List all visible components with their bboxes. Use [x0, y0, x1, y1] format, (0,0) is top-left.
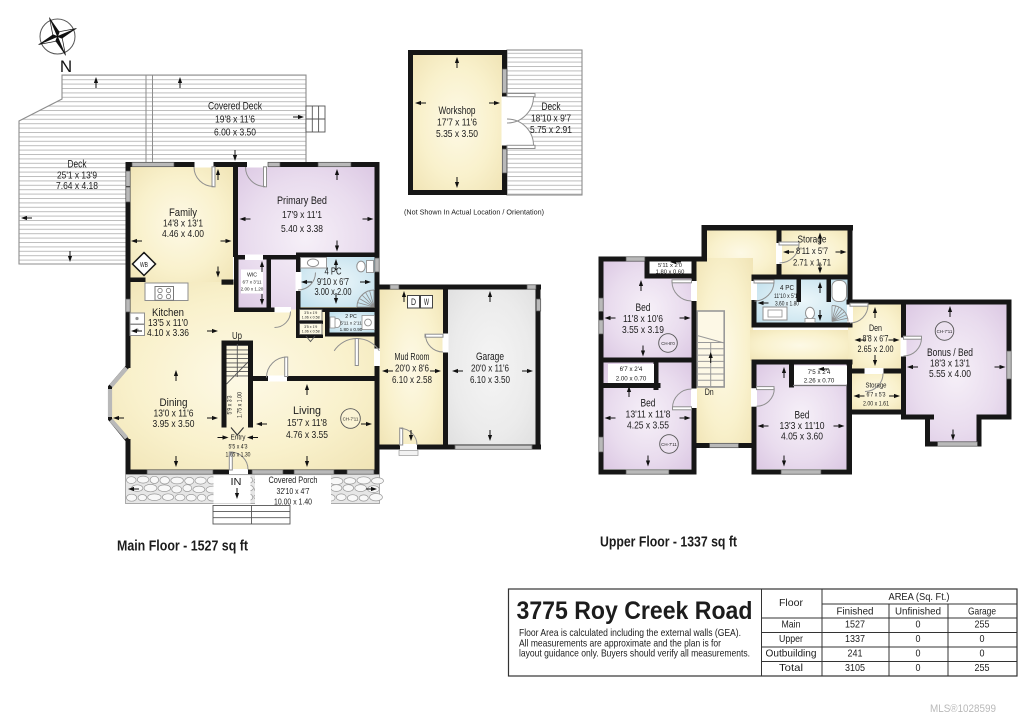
svg-text:19'8 x 11'6: 19'8 x 11'6 — [215, 114, 255, 126]
svg-text:Outbuilding: Outbuilding — [766, 648, 817, 660]
svg-text:Main: Main — [782, 619, 801, 631]
svg-text:5.75 x 2.91: 5.75 x 2.91 — [530, 124, 572, 136]
svg-text:18'10 x 9'7: 18'10 x 9'7 — [531, 113, 571, 125]
svg-text:Workshop: Workshop — [439, 105, 476, 117]
svg-text:1.65 x 1.30: 1.65 x 1.30 — [226, 452, 251, 459]
svg-text:Entry: Entry — [231, 435, 246, 442]
svg-text:Covered Deck: Covered Deck — [208, 101, 262, 113]
svg-text:4.05 x 3.60: 4.05 x 3.60 — [781, 431, 823, 443]
svg-text:6'7 x 5'3: 6'7 x 5'3 — [867, 392, 886, 399]
svg-text:Finished: Finished — [837, 606, 874, 618]
svg-text:5'11 x 2'0: 5'11 x 2'0 — [658, 263, 682, 269]
svg-text:Storage: Storage — [798, 235, 827, 246]
svg-text:255: 255 — [975, 662, 990, 674]
svg-text:CH-8'0: CH-8'0 — [661, 341, 675, 346]
svg-text:3'5 x 1'9: 3'5 x 1'9 — [304, 325, 317, 329]
svg-text:CH-7'11: CH-7'11 — [937, 329, 953, 334]
svg-text:Garage: Garage — [968, 606, 996, 618]
svg-text:6'7 x 2'4: 6'7 x 2'4 — [620, 366, 643, 373]
svg-text:3775 Roy Creek Road: 3775 Roy Creek Road — [517, 597, 753, 625]
svg-text:11'10 x 5'11: 11'10 x 5'11 — [774, 294, 801, 300]
svg-text:2.00 x 0.70: 2.00 x 0.70 — [616, 376, 647, 383]
svg-text:6.10 x 2.58: 6.10 x 2.58 — [392, 375, 432, 386]
svg-text:8'8 x 6'7: 8'8 x 6'7 — [863, 334, 889, 344]
svg-text:Unfinished: Unfinished — [895, 606, 941, 618]
svg-text:CH-7'11: CH-7'11 — [661, 442, 677, 447]
svg-text:Upper: Upper — [779, 633, 803, 645]
svg-text:4.46 x 4.00: 4.46 x 4.00 — [162, 228, 204, 240]
svg-text:Up: Up — [232, 331, 242, 342]
svg-text:5.55 x 4.00: 5.55 x 4.00 — [929, 368, 971, 380]
svg-text:WB: WB — [140, 260, 148, 269]
svg-text:N: N — [60, 57, 72, 76]
svg-text:0: 0 — [916, 662, 921, 674]
svg-text:0: 0 — [916, 648, 921, 660]
svg-text:1.06 x 0.58: 1.06 x 0.58 — [302, 330, 320, 334]
svg-text:Deck: Deck — [542, 101, 561, 113]
svg-text:(Not Shown In Actual Location: (Not Shown In Actual Location / Orientat… — [404, 208, 544, 217]
svg-text:Storage: Storage — [866, 383, 887, 390]
svg-text:Living: Living — [293, 405, 321, 417]
svg-text:2.00 x 1.20: 2.00 x 1.20 — [241, 287, 264, 292]
svg-text:0: 0 — [916, 633, 921, 645]
svg-text:2.71 x 1.71: 2.71 x 1.71 — [793, 258, 831, 269]
svg-text:1.80 x 0.90: 1.80 x 0.90 — [340, 327, 363, 332]
svg-text:20'0 x 11'6: 20'0 x 11'6 — [471, 364, 509, 375]
svg-text:5.35 x 3.50: 5.35 x 3.50 — [436, 128, 478, 140]
svg-text:1337: 1337 — [845, 633, 865, 645]
svg-text:Main Floor - 1527 sq ft: Main Floor - 1527 sq ft — [117, 538, 248, 555]
svg-text:3.95 x 3.50: 3.95 x 3.50 — [153, 418, 195, 430]
svg-text:4 PC: 4 PC — [325, 266, 342, 278]
svg-text:Total: Total — [779, 662, 803, 674]
svg-text:Garage: Garage — [476, 351, 504, 363]
svg-text:2.65 x 2.00: 2.65 x 2.00 — [858, 344, 894, 354]
svg-text:241: 241 — [848, 648, 863, 660]
svg-text:1.80 x 0.60: 1.80 x 0.60 — [656, 270, 685, 276]
svg-text:5'11 x 2'11: 5'11 x 2'11 — [340, 321, 362, 326]
svg-text:1.75 x 1.00: 1.75 x 1.00 — [237, 392, 244, 418]
svg-text:5'9 x 3'3: 5'9 x 3'3 — [227, 395, 234, 414]
svg-text:3.60 x 1.80: 3.60 x 1.80 — [775, 302, 800, 308]
svg-text:Upper Floor - 1337 sq ft: Upper Floor - 1337 sq ft — [600, 534, 737, 551]
svg-text:4.25 x 3.55: 4.25 x 3.55 — [627, 420, 669, 432]
svg-text:4 PC: 4 PC — [780, 283, 794, 292]
svg-text:3.55 x 3.19: 3.55 x 3.19 — [622, 324, 664, 336]
svg-text:2.00 x 1.61: 2.00 x 1.61 — [863, 401, 889, 408]
svg-text:5'5 x 4'3: 5'5 x 4'3 — [229, 444, 248, 451]
svg-text:D: D — [411, 297, 416, 307]
svg-text:4.10 x 3.36: 4.10 x 3.36 — [147, 327, 189, 339]
svg-text:15'7 x 11'8: 15'7 x 11'8 — [287, 417, 327, 429]
svg-text:7'5 x 2'4: 7'5 x 2'4 — [808, 369, 831, 376]
svg-text:3.00 x 2.00: 3.00 x 2.00 — [315, 287, 352, 298]
svg-text:IN: IN — [231, 477, 242, 488]
svg-text:0: 0 — [980, 633, 985, 645]
svg-text:6.00 x 3.50: 6.00 x 3.50 — [214, 127, 256, 139]
svg-text:10.00 x 1.40: 10.00 x 1.40 — [274, 497, 312, 507]
svg-text:1.06 x 0.58: 1.06 x 0.58 — [302, 316, 320, 320]
svg-text:0: 0 — [980, 648, 985, 660]
svg-text:4.76 x 3.55: 4.76 x 3.55 — [286, 429, 328, 441]
svg-text:1527: 1527 — [845, 619, 865, 631]
svg-text:3'5 x 1'9: 3'5 x 1'9 — [304, 311, 317, 315]
svg-text:17'7 x 11'6: 17'7 x 11'6 — [437, 117, 477, 129]
svg-text:Mud Room: Mud Room — [395, 351, 430, 363]
svg-text:5.40 x 3.38: 5.40 x 3.38 — [281, 223, 323, 235]
svg-text:W: W — [424, 297, 429, 307]
svg-text:17'9 x 11'1: 17'9 x 11'1 — [282, 209, 322, 221]
svg-text:2 PC: 2 PC — [345, 314, 357, 320]
svg-text:Primary Bed: Primary Bed — [277, 195, 327, 207]
svg-text:20'0 x 8'6: 20'0 x 8'6 — [395, 364, 429, 375]
svg-text:3105: 3105 — [845, 662, 865, 674]
svg-text:32'10 x 4'7: 32'10 x 4'7 — [277, 486, 310, 496]
svg-text:AREA (Sq. Ft.): AREA (Sq. Ft.) — [889, 591, 950, 603]
svg-text:CH-7'11: CH-7'11 — [343, 417, 359, 422]
svg-text:6'7 x 3'11: 6'7 x 3'11 — [242, 280, 261, 285]
svg-text:255: 255 — [975, 619, 990, 631]
svg-text:Dn: Dn — [705, 387, 714, 398]
svg-text:Floor: Floor — [779, 597, 803, 609]
svg-text:8'11 x 5'7: 8'11 x 5'7 — [796, 246, 828, 257]
svg-text:WIC: WIC — [247, 273, 257, 279]
svg-text:MLS®1028599: MLS®1028599 — [930, 703, 996, 715]
svg-text:2.26 x 0.70: 2.26 x 0.70 — [804, 378, 835, 385]
svg-text:0: 0 — [916, 619, 921, 631]
svg-text:Covered Porch: Covered Porch — [269, 475, 318, 485]
svg-text:Den: Den — [869, 323, 882, 334]
svg-text:6.10 x 3.50: 6.10 x 3.50 — [470, 375, 510, 386]
svg-text:7.64 x 4.18: 7.64 x 4.18 — [56, 180, 98, 192]
svg-text:layout guidance only. Buyers s: layout guidance only. Buyers should veri… — [519, 649, 750, 660]
